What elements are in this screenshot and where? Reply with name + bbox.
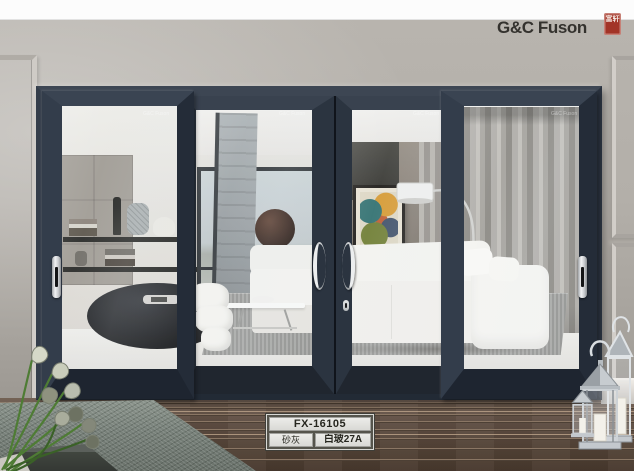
brand-logo: G&C Fuson	[497, 18, 587, 38]
candle-lanterns	[570, 294, 634, 471]
keyhole-icon	[343, 300, 349, 311]
glass-spec: 白玻27A	[315, 433, 371, 447]
product-label-plate: FX-16105 砂灰 白玻27A	[266, 414, 374, 450]
model-code: FX-16105	[269, 417, 371, 431]
product-photo-stage: G&C Fuson 富轩	[0, 0, 634, 471]
wall-molding-right-upper	[612, 56, 634, 238]
door-panel-3	[336, 96, 458, 394]
flush-handle-icon	[578, 256, 587, 298]
door-panel-2	[182, 96, 334, 394]
glass-pane-3	[352, 110, 445, 366]
calla-lily-plant	[0, 318, 112, 471]
glass-pane-4	[464, 106, 579, 369]
arc-handle-icon	[342, 242, 355, 290]
brand-seal-icon: 富轩	[604, 13, 621, 35]
frame-color-name: 砂灰	[269, 433, 313, 447]
glass-pane-2	[196, 110, 312, 366]
flush-handle-icon	[52, 256, 61, 298]
top-white-strip	[0, 0, 634, 20]
arc-handle-icon	[313, 242, 326, 290]
